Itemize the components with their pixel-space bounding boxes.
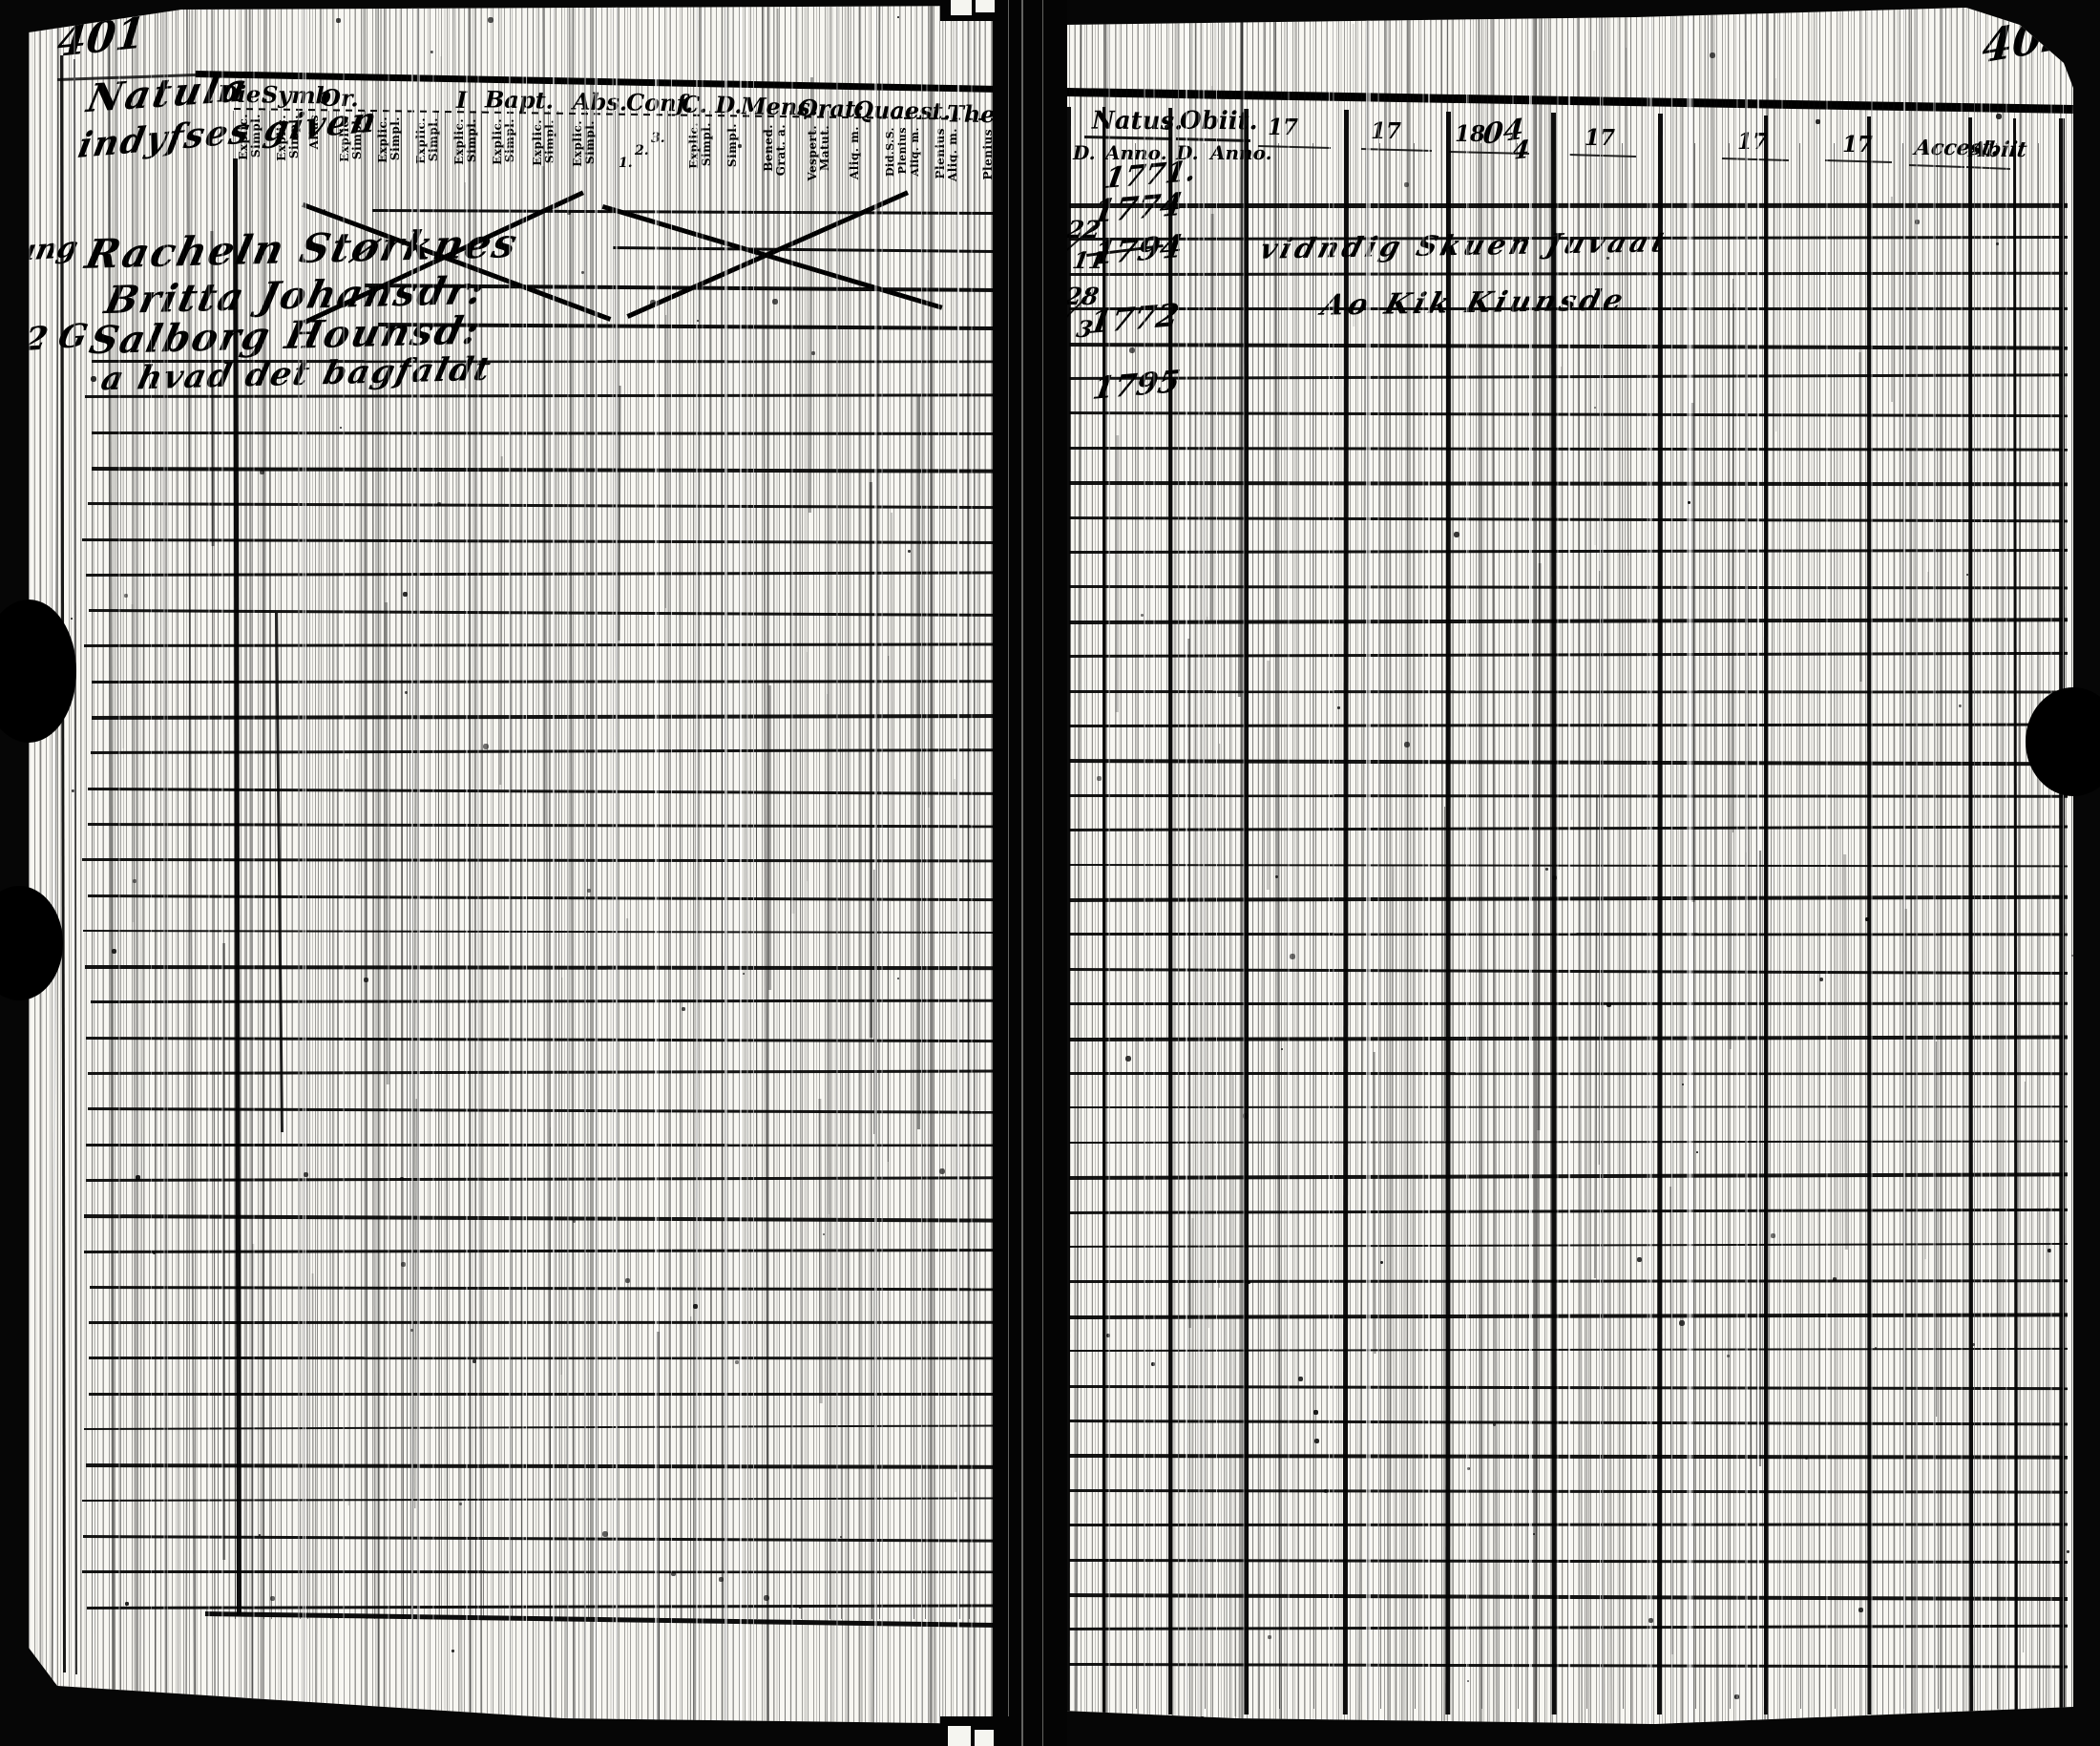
film-speck [1865,917,1869,921]
film-streak-light [1428,0,1430,1746]
film-streak [869,482,871,1038]
film-speck [1648,1618,1653,1623]
film-streak [892,513,893,901]
film-speck [1819,978,1823,981]
film-speck [1679,1320,1685,1326]
film-speck [2067,1550,2069,1553]
film-streak [439,56,441,291]
film-streak [1587,0,1591,1746]
film-speck [104,1693,109,1697]
film-streak-light [1144,0,1145,1746]
film-scan-stage: 401 Natula indyfses given Die.Symb.Or.IB… [0,0,2100,1746]
film-speck [403,592,408,597]
film-streak [347,759,349,1505]
film-speck [437,502,441,506]
film-speck [136,1175,140,1180]
film-streak [1873,0,1877,1746]
film-streak [1242,0,1244,1746]
film-speck [1996,114,2002,119]
film-speck [897,16,899,18]
film-streak [859,0,862,1746]
film-streak [107,0,115,1746]
film-streak-light [304,0,306,1746]
film-speck [1637,1257,1642,1262]
film-streak [1537,563,1541,1130]
film-speck [1915,220,1920,224]
film-notch-top-2 [976,0,995,12]
binding-gutter [993,0,1067,1746]
film-streak [363,0,367,1746]
film-streak [833,0,840,1746]
film-speck [1594,407,1596,409]
film-streak [1571,258,1574,820]
film-streak [1704,0,1709,1746]
film-speck [1125,1056,1131,1062]
film-streak-light [696,0,698,1746]
film-streak [32,0,38,1746]
film-speck [91,376,96,382]
film-speck [1682,1083,1684,1085]
film-streak-light [1329,0,1330,1746]
film-streak-light [466,0,468,1746]
film-streak-light [584,0,586,1746]
film-notch-bottom-1 [948,1726,971,1746]
film-speck [451,1650,454,1652]
film-streak [1485,0,1490,1746]
film-streak [1594,51,1596,545]
film-streak-light [921,0,922,1746]
film-speck [401,1262,406,1267]
film-streak [453,0,462,1746]
film-streak-light [1757,0,1759,1746]
film-streak-light [53,0,55,1746]
film-streak [1692,0,1695,1746]
film-streak-light [724,0,726,1746]
film-streak [499,456,502,785]
film-speck [1688,501,1690,504]
film-streak [888,656,889,1162]
film-streak [1626,0,1633,1746]
film-speck [72,789,74,792]
film-streak [1680,0,1682,1746]
film-streak [1559,367,1562,870]
film-speck [799,1607,801,1609]
film-streak [1168,158,1170,854]
film-streak [1353,24,1355,326]
film-streak [535,0,537,1746]
film-streak [1998,0,2005,1746]
film-streak-light [1933,0,1936,1746]
film-streak [244,0,247,1746]
film-speck [483,744,489,749]
film-speck [567,211,571,215]
film-streak [1295,0,1299,1746]
film-streak [826,0,829,1746]
film-speck [1106,1334,1110,1337]
film-streak [1478,0,1481,1746]
film-speck [1966,574,1968,576]
film-streak-light [595,0,598,1746]
film-streak [1712,0,1720,1746]
film-speck [1290,954,1295,959]
film-streak [1577,0,1584,1746]
film-streak-light [411,0,412,1746]
film-speck [1165,125,1169,130]
film-streak [38,0,43,1746]
film-speck [1710,53,1715,58]
film-streak-light [221,0,223,1746]
film-speck [671,1571,676,1576]
film-speck [459,1503,462,1505]
film-streak-light [509,0,511,1746]
film-speck [336,18,341,23]
film-speck [1493,1423,1496,1426]
film-speck [1380,1261,1383,1264]
film-speck [693,1304,698,1309]
film-streak-light [740,0,742,1746]
film-streak [1843,854,1848,1250]
film-speck [738,144,742,148]
film-speck [326,292,331,297]
film-streak [1259,0,1266,1746]
film-streak-light [1600,0,1602,1746]
film-speck [1734,1694,1739,1699]
film-speck [270,1596,275,1601]
film-speck [153,1252,156,1254]
film-streak-light [1203,0,1205,1746]
film-speck [840,1536,842,1538]
film-streak-light [616,0,618,1746]
film-speck [1771,1233,1775,1238]
film-streak [626,918,629,1573]
film-speck [472,1359,476,1363]
film-speck [1606,257,1609,260]
gutter-highlight [1021,0,1023,1746]
film-speck [1248,1281,1250,1284]
film-streak [155,0,158,1746]
film-streak-light [1529,0,1530,1746]
film-speck [804,116,807,119]
film-speck [573,1220,576,1223]
film-speck [405,691,408,694]
film-streak [1210,86,1212,311]
film-speck [1606,1002,1611,1007]
film-streak-light [1981,0,1983,1746]
film-speck [743,973,745,975]
film-speck [1545,868,1548,871]
film-streak [358,364,362,894]
film-speck [1404,742,1410,747]
film-streak-light [1568,0,1570,1746]
film-streak-light [671,0,672,1746]
film-speck [735,1360,739,1364]
film-streak-light [167,0,168,1746]
film-speck [133,879,136,883]
film-speck [1858,1608,1863,1612]
film-speck [71,618,73,620]
film-speck [1805,1457,1808,1460]
film-speck [488,17,493,23]
film-streak [252,1244,254,1746]
film-streak-light [1369,0,1371,1746]
film-speck [939,1168,945,1174]
film-speck [908,550,911,553]
film-speck [1314,1439,1319,1443]
gutter-highlight [1042,0,1043,1746]
film-streak-light [2063,0,2064,1746]
film-streak [848,0,851,1746]
film-streak [1490,0,1499,1746]
film-streak [1759,851,1761,1466]
film-streak [52,0,60,1746]
film-speck [1200,1716,1205,1721]
film-speck [2071,955,2073,957]
film-streak [261,0,267,1746]
film-streak [844,0,847,1746]
film-streak [473,0,482,1746]
film-streak [1816,0,1819,1746]
film-speck [1996,242,1999,245]
right-page: 402 Natus.D.Anno.Obiit.D.Anno.1717180441… [1063,0,2073,1746]
film-speck [410,1329,413,1332]
film-speck [430,51,433,53]
film-streak [1594,795,1598,1278]
film-streak [1273,0,1282,1746]
film-streak [819,1099,823,1403]
film-streak-light [1689,0,1691,1746]
film-streak [2046,1208,2049,1746]
film-streak [1207,617,1209,1328]
film-streak-light [1466,0,1467,1746]
film-speck [1337,706,1340,709]
film-streak [122,303,124,748]
film-streak [1941,0,1943,1746]
film-speck [1404,182,1409,187]
film-streak [1774,78,1775,431]
film-speck [897,978,899,979]
film-speck [260,470,264,474]
film-streak [808,77,813,513]
film-streak [2023,1082,2026,1652]
film-notch-top-1 [951,0,972,15]
film-streak [399,0,403,1746]
film-streak [316,0,321,1746]
film-streak [690,1316,692,1746]
film-streak-light [1989,0,1990,1746]
film-speck [1313,1410,1318,1415]
film-speck [125,1602,129,1606]
film-speck [124,594,128,598]
film-speck [587,889,591,893]
film-streak-light [1186,0,1187,1746]
film-speck [719,1577,724,1582]
film-speck [1816,119,1820,124]
film-speck [1151,1362,1155,1366]
film-streak [1221,0,1228,1746]
film-streak-light [655,0,657,1746]
film-streak [2015,0,2023,1746]
film-streak [776,9,778,247]
film-streak [1232,1073,1236,1716]
film-speck [1552,875,1557,880]
film-streak-light [957,0,959,1746]
film-streak [1604,0,1612,1746]
film-streak-light [553,0,555,1746]
film-speck [1298,1377,1303,1381]
film-speck [697,320,699,322]
film-speck [1727,1355,1730,1357]
film-speck [1833,1277,1837,1281]
film-streak [1194,0,1199,1746]
film-speck [1467,1467,1470,1470]
film-speck [1097,776,1102,781]
film-speck [324,209,325,211]
film-streak-light [1216,0,1217,1746]
film-speck [2047,1249,2051,1252]
film-notch-bottom-2 [975,1730,994,1746]
film-speck [772,299,778,305]
gutter-highlight [1008,0,1009,1746]
film-speck [823,1233,825,1235]
film-streak [1914,0,1917,1746]
film-speck [1972,1343,1975,1346]
film-speck [1454,532,1459,537]
film-streak-light [753,0,754,1746]
film-speck [1129,347,1135,353]
film-speck [259,1534,261,1536]
film-speck [650,300,656,305]
film-speck [602,1531,608,1537]
film-speck [304,1172,308,1177]
film-streak [1374,1052,1376,1354]
film-speck [1243,1113,1249,1119]
film-streak [115,0,121,1746]
film-streak [561,978,563,1375]
film-streak [1859,0,1861,1746]
film-streak [665,315,667,608]
film-streak [139,0,146,1746]
film-streak [176,0,181,1746]
film-streak-light [1903,0,1905,1746]
film-speck [112,949,116,954]
film-streak [1219,744,1220,1288]
film-streak [1266,661,1269,890]
film-speck [682,1007,685,1011]
left-page: 401 Natula indyfses given Die.Symb.Or.IB… [29,6,1000,1730]
film-streak [1924,572,1928,1259]
film-streak [967,0,970,1746]
film-speck [581,271,584,274]
film-streak-light [1974,0,1975,1746]
film-streak [591,0,594,1746]
film-speck [1141,614,1144,617]
film-streak-light [874,0,877,1746]
film-streak [1891,197,1893,402]
film-streak-light [1649,0,1651,1746]
film-streak-light [938,0,939,1746]
film-speck [764,1595,769,1601]
film-speck [1696,1151,1698,1153]
film-streak [1936,1041,1937,1417]
film-speck [1268,1635,1271,1639]
film-streak-light [1671,0,1672,1746]
film-speck [1467,1680,1469,1682]
film-speck [400,1177,404,1181]
film-streak-light [1178,0,1179,1746]
film-speck [1875,1347,1877,1349]
film-streak-light [526,0,527,1746]
film-speck [811,351,815,355]
film-speck [1275,875,1278,878]
film-streak [1962,0,1965,1746]
film-streak [1116,435,1119,712]
film-speck [1533,1533,1535,1535]
film-speck [364,978,368,982]
film-speck [340,427,342,429]
film-speck [1281,1048,1283,1050]
film-speck [625,1278,630,1283]
film-speck [1324,1489,1328,1493]
film-streak [1549,0,1554,1746]
film-streak [92,0,95,1746]
film-streak [1076,0,1082,1746]
film-streak [311,1273,314,1614]
film-streak-light [1745,0,1748,1746]
film-speck [1959,705,1962,707]
film-streak-light [303,0,304,1746]
film-streak [619,386,621,641]
film-streak [807,652,808,881]
film-streak-light [151,0,152,1746]
film-streak-light [417,0,420,1746]
